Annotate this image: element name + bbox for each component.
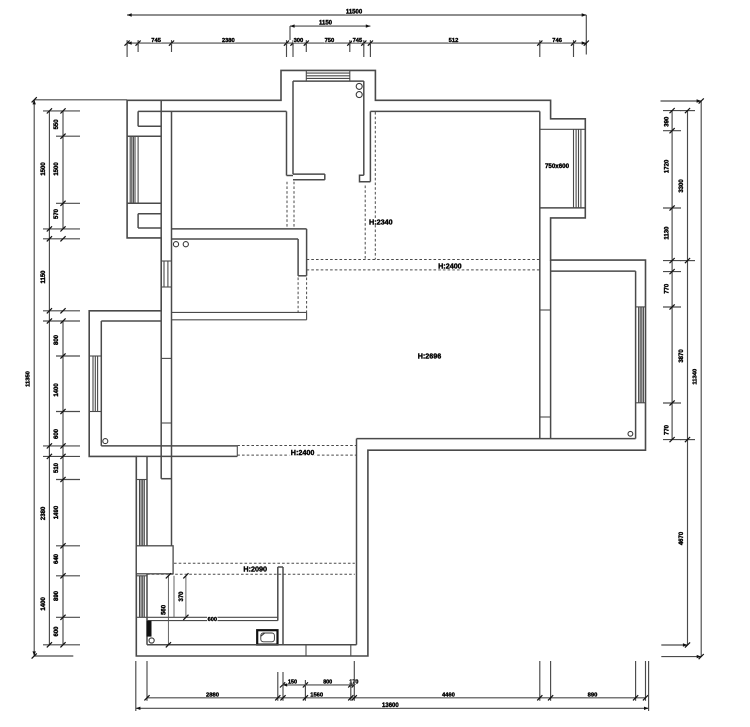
svg-text:H:2340: H:2340 — [369, 217, 393, 226]
svg-text:2880: 2880 — [206, 692, 219, 698]
svg-text:13600: 13600 — [382, 703, 399, 709]
svg-text:890: 890 — [588, 692, 598, 698]
svg-text:2380: 2380 — [41, 506, 47, 520]
svg-text:770: 770 — [664, 424, 670, 435]
svg-text:600: 600 — [54, 428, 60, 439]
svg-text:11350: 11350 — [26, 371, 32, 387]
svg-text:745: 745 — [151, 38, 161, 44]
svg-text:3300: 3300 — [679, 179, 685, 193]
svg-text:H:2696: H:2696 — [418, 351, 442, 360]
svg-text:1400: 1400 — [54, 383, 60, 397]
svg-text:370: 370 — [179, 591, 185, 602]
svg-text:750x600: 750x600 — [545, 163, 570, 170]
svg-text:800: 800 — [54, 334, 60, 345]
svg-text:560: 560 — [162, 604, 168, 615]
svg-text:512: 512 — [449, 38, 459, 44]
svg-text:4670: 4670 — [679, 531, 685, 545]
svg-text:1500: 1500 — [41, 162, 47, 176]
svg-text:745: 745 — [353, 38, 363, 44]
svg-text:390: 390 — [664, 116, 670, 127]
svg-text:750: 750 — [325, 38, 335, 44]
svg-text:4460: 4460 — [442, 692, 455, 698]
svg-text:800: 800 — [323, 679, 332, 685]
svg-text:H:2400: H:2400 — [438, 262, 462, 271]
svg-text:890: 890 — [54, 590, 60, 601]
svg-text:600: 600 — [54, 626, 60, 637]
svg-text:1490: 1490 — [54, 505, 60, 519]
svg-text:11340: 11340 — [693, 369, 699, 385]
svg-text:2380: 2380 — [222, 38, 235, 44]
svg-text:150: 150 — [288, 679, 297, 685]
svg-text:11500: 11500 — [346, 10, 363, 16]
svg-text:550: 550 — [54, 119, 60, 130]
svg-text:600: 600 — [208, 617, 217, 623]
svg-text:H:2400: H:2400 — [291, 448, 315, 457]
svg-text:510: 510 — [54, 462, 60, 473]
svg-text:1150: 1150 — [319, 21, 333, 27]
svg-text:770: 770 — [664, 283, 670, 294]
svg-text:300: 300 — [294, 38, 304, 44]
svg-text:1500: 1500 — [54, 162, 60, 176]
svg-text:746: 746 — [552, 38, 562, 44]
svg-text:570: 570 — [54, 208, 60, 219]
svg-text:640: 640 — [54, 553, 60, 564]
svg-text:1720: 1720 — [664, 159, 670, 173]
svg-text:3870: 3870 — [679, 349, 685, 363]
svg-text:1400: 1400 — [41, 597, 47, 611]
svg-text:1560: 1560 — [310, 692, 323, 698]
svg-text:1150: 1150 — [41, 270, 47, 284]
svg-text:1130: 1130 — [664, 226, 670, 240]
svg-text:H:2090: H:2090 — [243, 564, 267, 573]
